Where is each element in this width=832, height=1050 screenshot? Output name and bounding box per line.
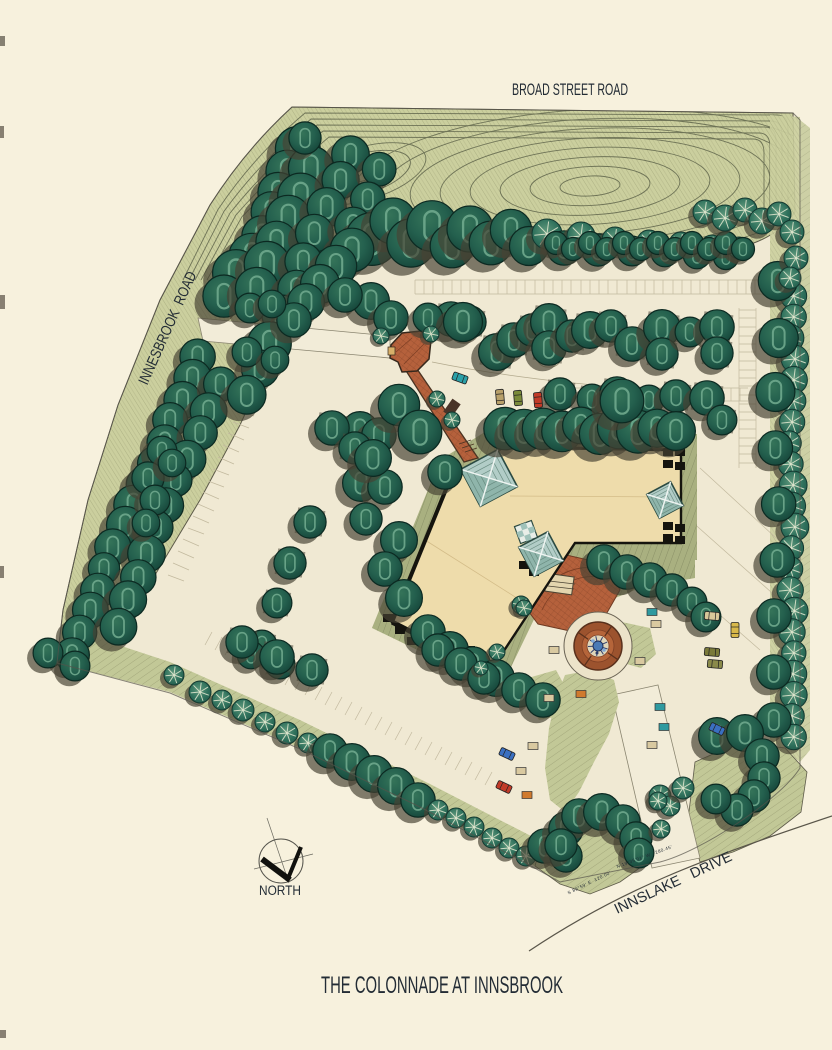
svg-text:NORTH: NORTH	[259, 883, 301, 898]
svg-text:BROAD STREET ROAD: BROAD STREET ROAD	[512, 81, 628, 99]
svg-text:THE COLONNADE AT INNSBROOK: THE COLONNADE AT INNSBROOK	[321, 972, 563, 999]
